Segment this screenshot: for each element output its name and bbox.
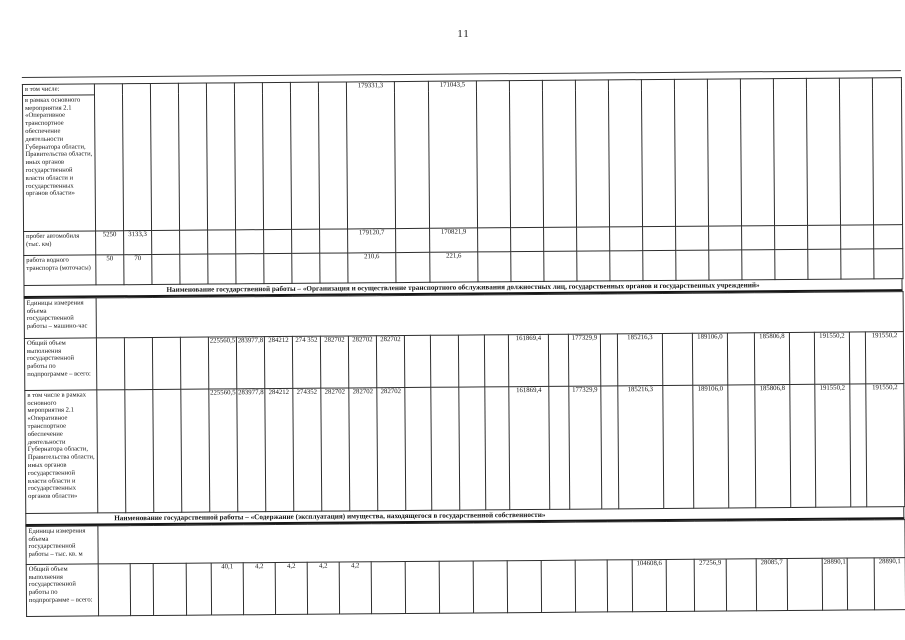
table-cell bbox=[666, 559, 694, 611]
table-cell bbox=[577, 227, 610, 251]
table-cell bbox=[674, 79, 708, 226]
table-cell bbox=[808, 225, 841, 249]
row-label: Общий объем выполнения государственной р… bbox=[24, 338, 96, 391]
table-cell bbox=[484, 334, 508, 386]
table-cell bbox=[208, 230, 236, 254]
table-cell bbox=[262, 82, 291, 229]
table-cell bbox=[290, 82, 319, 229]
table-cell bbox=[152, 254, 180, 284]
table-cell bbox=[676, 226, 709, 250]
table-cell bbox=[601, 386, 619, 509]
table-cell: 221,6 bbox=[430, 252, 478, 282]
table-cell: 185216,3 bbox=[618, 385, 664, 508]
table-cell bbox=[641, 79, 675, 226]
table-cell bbox=[643, 226, 676, 250]
table-cell: 225560,5 bbox=[209, 389, 238, 512]
row-label: в рамках основного мероприятия 2.1 «Опер… bbox=[22, 95, 95, 232]
table-top-border-line bbox=[22, 70, 901, 78]
table-cell bbox=[610, 250, 643, 280]
table-cell bbox=[775, 225, 808, 249]
table-cell: 210,6 bbox=[348, 252, 396, 282]
table-cell: 225560,5 bbox=[208, 337, 236, 389]
table-cell: 171043,5 bbox=[428, 81, 477, 228]
table-cell bbox=[541, 560, 575, 612]
table-cell bbox=[264, 253, 292, 283]
table-cell: 161869,4 bbox=[508, 334, 548, 386]
table-cell: 4,2 bbox=[307, 562, 339, 614]
table-cell: 282702 bbox=[377, 387, 406, 510]
table-cell bbox=[542, 80, 576, 227]
table-cell: 70 bbox=[124, 254, 152, 284]
row-label: Единицы измерения объема государственной… bbox=[26, 526, 98, 565]
table-cell bbox=[841, 249, 874, 279]
table-cell bbox=[98, 519, 905, 563]
table-cell bbox=[676, 250, 709, 280]
table-cell bbox=[707, 79, 741, 226]
table-section-3: Единицы измерения объема государственной… bbox=[25, 519, 905, 617]
row-label: в том числе в рамках основного мероприят… bbox=[25, 390, 98, 514]
table-cell bbox=[206, 83, 235, 230]
table-cell bbox=[544, 251, 577, 281]
table-cell bbox=[775, 249, 808, 279]
table-cell bbox=[478, 251, 511, 281]
table-cell: 4,2 bbox=[275, 562, 307, 614]
table-cell: 40,1 bbox=[211, 563, 243, 615]
table-cell bbox=[742, 225, 775, 249]
table-cell bbox=[405, 387, 432, 510]
table-cell: 4,2 bbox=[243, 562, 275, 614]
table-cell bbox=[808, 249, 841, 279]
table-cell bbox=[575, 80, 609, 227]
table-cell bbox=[849, 332, 865, 384]
table-cell bbox=[709, 226, 742, 250]
table-cell bbox=[178, 83, 207, 230]
table-cell: 284212 bbox=[265, 388, 294, 511]
scanned-table-area: в том числе:179331,3171043,5в рамках осн… bbox=[22, 77, 905, 617]
table-cell bbox=[153, 389, 182, 512]
table-cell bbox=[607, 560, 632, 612]
table-cell: 282702 bbox=[349, 388, 378, 511]
table-cell bbox=[544, 227, 577, 251]
table-cell bbox=[404, 335, 430, 387]
table-cell bbox=[478, 227, 511, 251]
table-cell: 28890,1 bbox=[874, 557, 905, 609]
table-cell bbox=[98, 563, 130, 615]
table-cell bbox=[874, 248, 903, 278]
table-cell bbox=[600, 334, 617, 386]
table-cell bbox=[643, 250, 676, 280]
table-cell bbox=[152, 337, 180, 389]
table-cell bbox=[180, 230, 208, 254]
table-cell bbox=[94, 84, 123, 231]
table-cell bbox=[507, 560, 541, 612]
table-cell bbox=[709, 250, 742, 280]
table-cell: 170821,9 bbox=[430, 228, 478, 252]
table-cell bbox=[320, 253, 348, 283]
row-label: в том числе: bbox=[22, 84, 94, 95]
table-cell bbox=[394, 81, 429, 228]
table-cell bbox=[728, 385, 756, 508]
table-cell bbox=[125, 389, 154, 512]
table-cell: 50 bbox=[96, 255, 124, 285]
table-cell bbox=[430, 335, 458, 387]
table-cell: 282702 bbox=[376, 335, 404, 387]
table-cell: 191550,2 bbox=[814, 332, 849, 384]
table-cell bbox=[839, 78, 873, 225]
table-cell: 274 352 bbox=[292, 336, 320, 388]
table-cell bbox=[789, 332, 814, 384]
table-cell: 179120,7 bbox=[348, 228, 396, 252]
table-cell bbox=[153, 563, 186, 615]
table-cell: 4,2 bbox=[339, 562, 371, 614]
table-section-2: Единицы измерения объема государственной… bbox=[24, 291, 905, 514]
table-cell: 27256,9 bbox=[694, 559, 726, 611]
table-cell: 191550,2 bbox=[866, 383, 905, 506]
table-cell bbox=[97, 390, 126, 513]
row-label: пробег автомобиля (тыс. км) bbox=[24, 231, 96, 256]
table-cell: 104608,6 bbox=[632, 559, 666, 611]
table-cell bbox=[473, 561, 507, 613]
table-cell: 282702 bbox=[348, 336, 376, 388]
table-cell: 177329,9 bbox=[568, 334, 600, 386]
table-cell bbox=[806, 78, 840, 225]
table-cell bbox=[548, 334, 568, 386]
table-cell bbox=[847, 558, 874, 610]
table-cell bbox=[727, 333, 754, 385]
table-cell: 185806,8 bbox=[755, 384, 791, 507]
table-cell bbox=[318, 82, 347, 229]
table-cell bbox=[396, 228, 430, 252]
table-cell bbox=[130, 563, 153, 615]
table-cell bbox=[459, 387, 486, 510]
row-label: Единицы измерения объема государственной… bbox=[24, 298, 96, 339]
table-cell bbox=[773, 78, 807, 225]
table-cell bbox=[790, 384, 816, 507]
table-cell: 179331,3 bbox=[346, 82, 395, 229]
table-cell: 283977,8 bbox=[237, 388, 266, 511]
table-cell: 191550,2 bbox=[815, 384, 851, 507]
table-cell bbox=[458, 335, 484, 387]
page-number: 11 bbox=[24, 28, 903, 40]
table-cell: 28890,1 bbox=[822, 558, 847, 610]
table-cell bbox=[726, 559, 756, 611]
table-cell bbox=[186, 563, 211, 615]
table-cell bbox=[874, 224, 903, 248]
table-cell bbox=[742, 249, 775, 279]
table-cell: 284212 bbox=[264, 336, 292, 388]
table-cell: 189106,0 bbox=[692, 333, 727, 385]
table-cell bbox=[476, 81, 510, 228]
table-cell bbox=[264, 229, 292, 253]
table-cell bbox=[96, 338, 124, 390]
table-cell: 283977,8 bbox=[236, 336, 264, 388]
table-cell: 185806,8 bbox=[754, 332, 789, 384]
table-cell bbox=[841, 225, 874, 249]
table-cell bbox=[150, 83, 179, 230]
table-cell bbox=[180, 254, 208, 284]
table-cell bbox=[236, 253, 264, 283]
table-cell bbox=[320, 229, 348, 253]
table-cell bbox=[608, 80, 642, 227]
table-cell bbox=[577, 251, 610, 281]
table-cell bbox=[292, 253, 320, 283]
table-cell bbox=[511, 227, 544, 251]
table-cell bbox=[787, 558, 822, 610]
table-cell bbox=[234, 83, 263, 230]
table-cell bbox=[663, 385, 694, 508]
table-cell: 189106,0 bbox=[693, 385, 729, 508]
table-cell bbox=[152, 230, 180, 254]
table-cell bbox=[485, 386, 510, 509]
table-cell bbox=[396, 252, 430, 282]
document-page: { "page": { "number": "11" }, "document"… bbox=[0, 0, 905, 640]
table-section-1: в том числе:179331,3171043,5в рамках осн… bbox=[22, 77, 904, 286]
table-cell: 161869,4 bbox=[509, 386, 550, 509]
table-cell: 177329,9 bbox=[569, 386, 602, 509]
table-cell bbox=[405, 561, 439, 613]
table-cell bbox=[850, 384, 867, 507]
table-cell bbox=[575, 560, 607, 612]
row-label: работа водного транспорта (моточасы) bbox=[24, 255, 96, 286]
table-cell bbox=[371, 561, 405, 613]
table-cell bbox=[872, 78, 902, 225]
table-cell: 282702 bbox=[320, 336, 348, 388]
table-cell bbox=[181, 389, 210, 512]
table-cell bbox=[122, 83, 151, 230]
table-cell bbox=[509, 80, 543, 227]
table-cell: 282702 bbox=[321, 388, 350, 511]
table-cell bbox=[549, 386, 570, 509]
table-cell bbox=[96, 291, 903, 337]
row-label: Общий объем выполнения государственной р… bbox=[26, 564, 98, 617]
table-cell bbox=[439, 561, 473, 613]
table-cell bbox=[292, 229, 320, 253]
table-cell: 185216,3 bbox=[617, 333, 662, 385]
table-cell bbox=[662, 333, 692, 385]
table-cell bbox=[180, 337, 208, 389]
table-cell bbox=[431, 387, 460, 510]
table-cell bbox=[124, 337, 152, 389]
table-cell: 28085,7 bbox=[756, 558, 787, 610]
table-cell: 3133,3 bbox=[124, 230, 152, 254]
table-cell: 5250 bbox=[96, 231, 124, 255]
table-cell bbox=[740, 79, 774, 226]
table-cell: 274352 bbox=[293, 388, 322, 511]
table-cell bbox=[208, 254, 236, 284]
table-cell: 191550,2 bbox=[865, 331, 904, 383]
table-cell bbox=[610, 226, 643, 250]
table-cell bbox=[511, 251, 544, 281]
table-cell bbox=[236, 229, 264, 253]
